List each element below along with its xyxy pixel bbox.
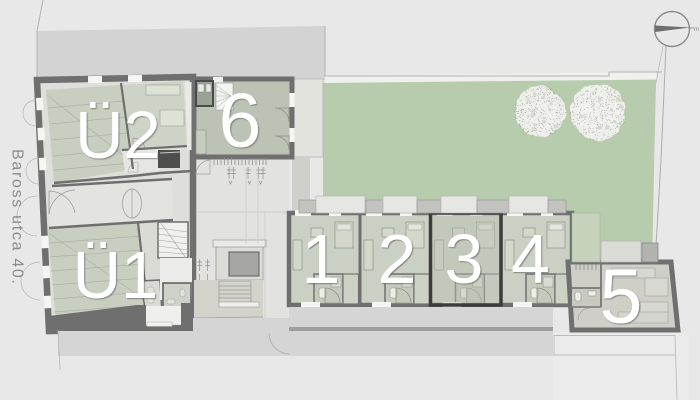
svg-text:1: 1 xyxy=(302,220,341,298)
svg-text:Ü1: Ü1 xyxy=(73,238,159,313)
svg-text:4: 4 xyxy=(511,220,550,298)
svg-text:Baross utca 40.: Baross utca 40. xyxy=(9,149,26,286)
svg-text:5: 5 xyxy=(600,254,643,340)
svg-text:3: 3 xyxy=(445,220,484,298)
svg-text:m: m xyxy=(694,26,699,33)
svg-text:6: 6 xyxy=(219,78,262,164)
svg-text:2: 2 xyxy=(378,220,417,298)
svg-text:Ü2: Ü2 xyxy=(75,98,161,173)
